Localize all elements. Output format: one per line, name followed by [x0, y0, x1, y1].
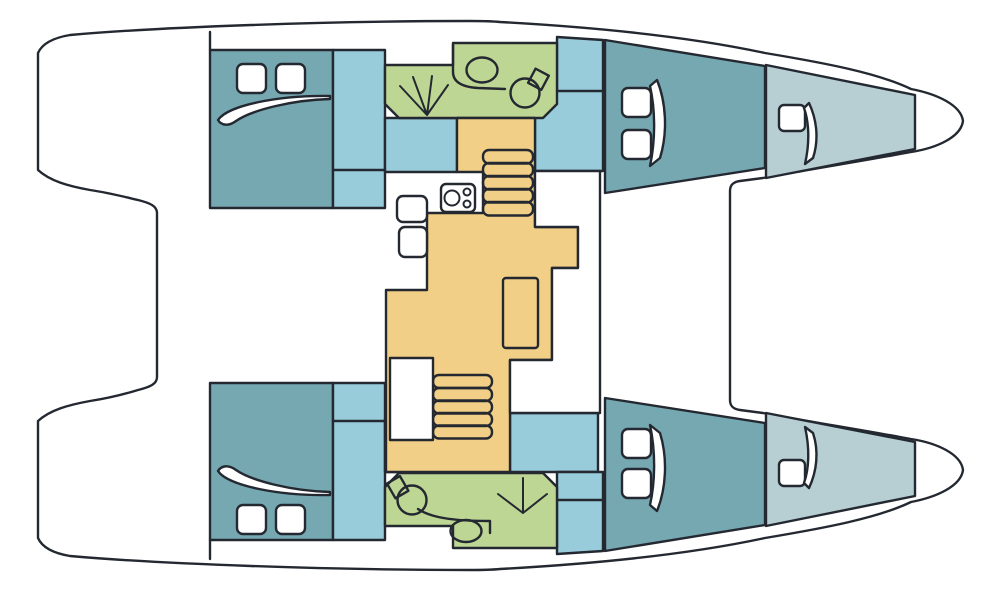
- starboard-entry: [557, 472, 603, 554]
- deck-hatch: [622, 88, 651, 117]
- deck-hatch: [276, 505, 305, 534]
- deck-hatch: [622, 469, 651, 498]
- galley-sink-icon: [397, 196, 427, 222]
- port-passage: [385, 118, 457, 172]
- deck-hatch: [779, 460, 805, 486]
- catamaran-floor-plan: [0, 0, 1004, 591]
- galley-sink-icon: [399, 227, 427, 257]
- deck-hatch: [779, 105, 805, 131]
- nav-nook: [390, 358, 433, 440]
- port-companionway: [333, 50, 385, 208]
- salon-table: [503, 278, 538, 348]
- floor-plan-canvas: [0, 0, 1004, 591]
- deck-hatch: [622, 130, 651, 159]
- cockpit-passage: [510, 413, 598, 472]
- deck-hatch: [237, 505, 266, 534]
- starboard-companionway: [333, 383, 385, 540]
- deck-hatch: [276, 64, 305, 93]
- port-aft-cabin: [210, 50, 333, 208]
- deck-hatch: [237, 64, 266, 93]
- stove-icon: [441, 184, 475, 212]
- starboard-aft-cabin: [210, 383, 333, 540]
- deck-hatch: [622, 429, 651, 458]
- forepeaks-layer: [766, 65, 915, 526]
- plan-root: [38, 21, 963, 570]
